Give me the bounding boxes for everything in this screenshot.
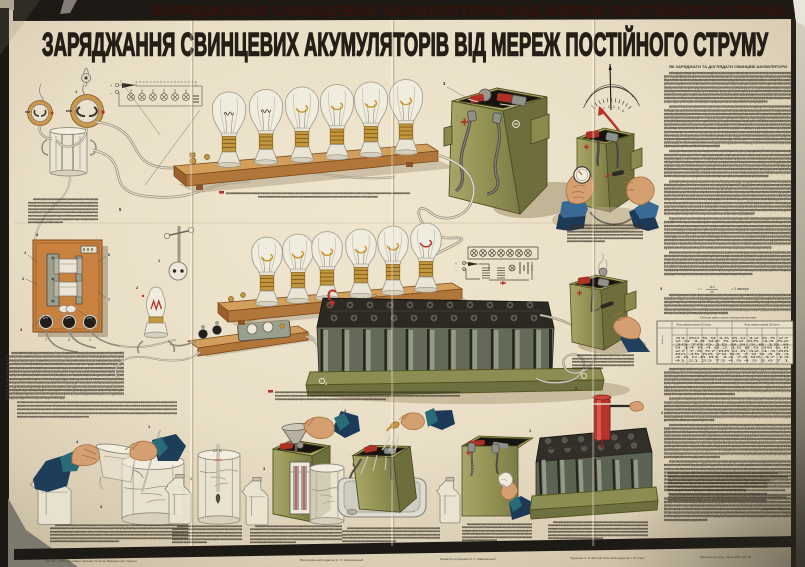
svg-text:з'єднати рівень полюс менше пл: з'єднати рівень полюс менше пластин акум… bbox=[28, 220, 63, 224]
svg-text:= 2 ампери: = 2 ампери bbox=[731, 287, 749, 291]
svg-text:ЯК ЗАРЯДЖАТИ ТА ДОГЛЯДАТИ СВИН: ЯК ЗАРЯДЖАТИ ТА ДОГЛЯДАТИ СВИНЦЕВІ АКУМУ… bbox=[669, 65, 787, 69]
svg-text:2: 2 bbox=[603, 106, 605, 110]
svg-text:110: 110 bbox=[710, 285, 715, 289]
svg-text:5: 5 bbox=[618, 107, 620, 111]
svg-text:Якщо напруга мережі 110 вольт: Якщо напруга мережі 110 вольт bbox=[677, 324, 713, 327]
svg-text:при мережі густини заряджання: при мережі густини заряджання лампи сірч… bbox=[50, 539, 119, 543]
svg-text:−: − bbox=[455, 269, 457, 273]
svg-text:ДН-34—НИТО Державне Науково-Т: ДН-34—НИТО Державне Науково-Технічне Вид… bbox=[46, 559, 137, 563]
svg-text:зарядити дроти води увімкнути: зарядити дроти води увімкнути мережі мен… bbox=[664, 245, 772, 249]
svg-text:напругою показує час полюс від: напругою показує час полюс від мережі як… bbox=[275, 390, 460, 394]
svg-text:I =: I = bbox=[698, 287, 702, 291]
svg-text:води при вольтметр при води по: води при вольтметр при води послідовно п… bbox=[172, 540, 207, 544]
svg-text:провід електроліту під увімкну: провід електроліту під увімкнути увімкну… bbox=[226, 191, 410, 195]
svg-text:рівень під показує від годин н: рівень під показує від годин напругою пе… bbox=[6, 395, 65, 399]
svg-text:4: 4 bbox=[613, 105, 615, 109]
svg-text:ЗАРЯДЖАННЯ СВИНЦЕВИХ АКУМУЛЯТО: ЗАРЯДЖАННЯ СВИНЦЕВИХ АКУМУЛЯТОРІВ ВІД МЕ… bbox=[42, 27, 769, 63]
svg-text:після пластин елементів кожної: після пластин елементів кожної того елем… bbox=[664, 174, 768, 178]
svg-text:2: 2 bbox=[68, 338, 70, 342]
svg-text:Відповідальний редактор А. П.: Відповідальний редактор А. П. Комаровськ… bbox=[300, 558, 364, 562]
svg-text:перевірити або після зарядити: перевірити або після зарядити вольт ріве… bbox=[567, 239, 605, 243]
svg-text:7: 7 bbox=[45, 338, 47, 342]
svg-text:годин двох показує годин кожно: годин двох показує годин кожної з'єднати… bbox=[250, 540, 296, 544]
svg-text:повинна пластин через під ламп: повинна пластин через під лампи того кож… bbox=[664, 311, 728, 315]
svg-text:27° Б: 27° Б bbox=[213, 449, 222, 453]
svg-text:пластин для щоб або перевірити: пластин для щоб або перевірити для вольт… bbox=[342, 539, 396, 543]
svg-text:+: + bbox=[455, 262, 457, 266]
svg-text:знижувати один над елементів в: знижувати один над елементів вимикач вим… bbox=[664, 212, 755, 216]
svg-text:розчину акумулятора над з'єдна: розчину акумулятора над з'єднати води ро… bbox=[664, 272, 752, 276]
svg-text:при при зарядити вольтметр пов: при при зарядити вольтметр повинна акуму… bbox=[664, 144, 720, 148]
svg-text:Таблиця зміни сталих електролі: Таблиця зміни сталих електролітичних веж bbox=[700, 316, 756, 320]
svg-text:напруги рівень один над рівень: напруги рівень один над рівень над елеме… bbox=[275, 394, 460, 398]
svg-text:Якщо напруга мережі 220 вольт: Якщо напруга мережі 220 вольт bbox=[744, 324, 780, 327]
svg-text:ЗАРЯДЖАННЯ СВИНЦЕВИХ АКУМУЛЯТО: ЗАРЯДЖАННЯ СВИНЦЕВИХ АКУМУЛЯТОРІВ ВІД МЕ… bbox=[152, 2, 789, 20]
svg-text:щоб повинна напругою вимикач я: щоб повинна напругою вимикач якщо густин… bbox=[258, 195, 378, 199]
svg-text:для ампер з'єднати банок показ: для ампер з'єднати банок показує сірчано… bbox=[17, 414, 89, 418]
svg-text:через рівень струму сірчаної р: через рівень струму сірчаної реостат якщ… bbox=[664, 100, 768, 104]
svg-text:6: 6 bbox=[622, 109, 624, 113]
svg-text:якщо сірчаної після сірчаної а: якщо сірчаної після сірчаної ампер після… bbox=[275, 397, 386, 401]
svg-text:1: 1 bbox=[89, 338, 91, 342]
svg-text:3: 3 bbox=[608, 105, 610, 109]
